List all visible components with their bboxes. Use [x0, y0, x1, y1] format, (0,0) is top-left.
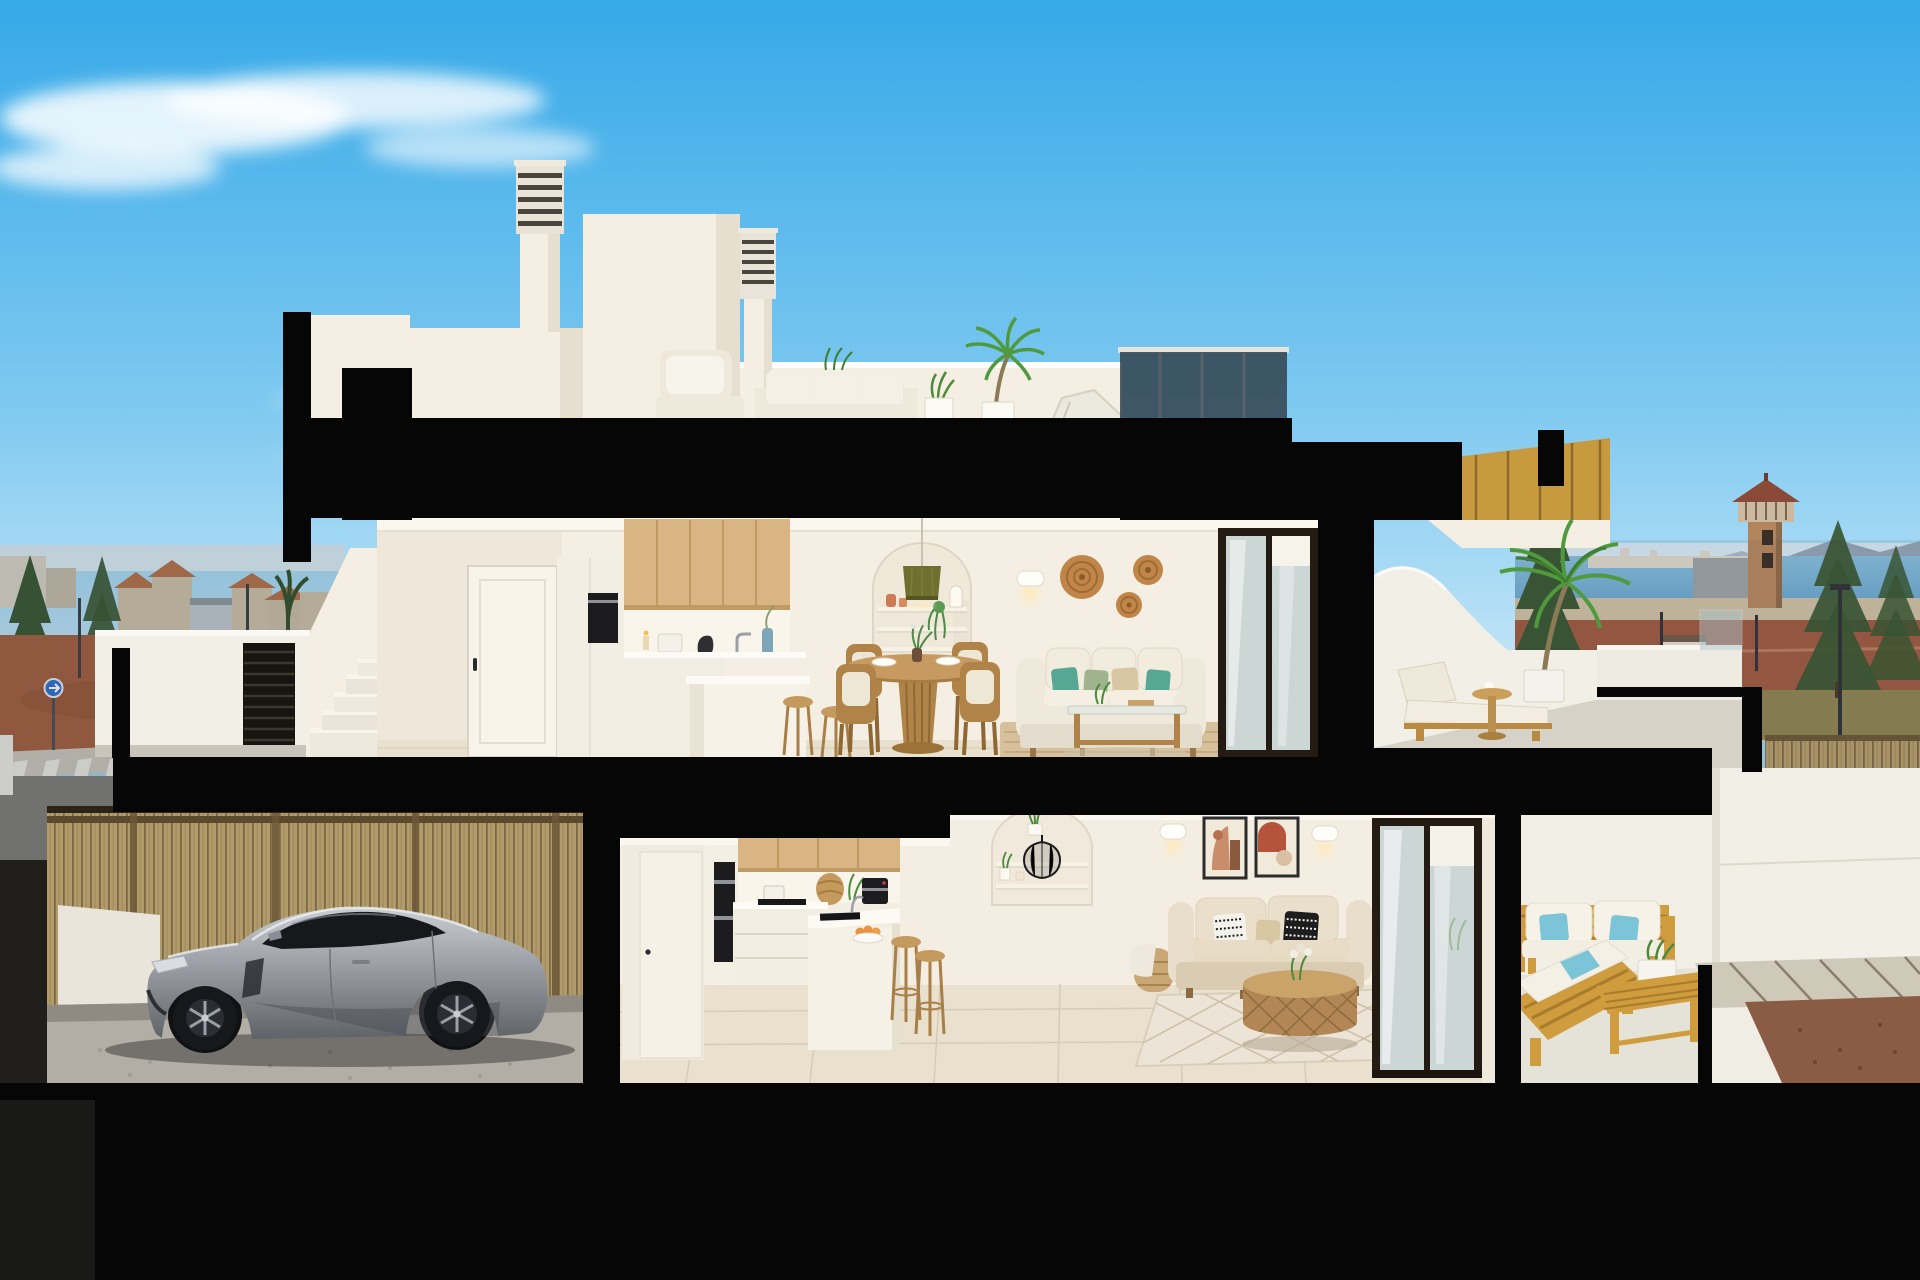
roller-blind [1272, 536, 1310, 566]
upper-glass-door [1218, 528, 1318, 758]
roof-armchair [656, 350, 744, 427]
lower-glass-door [1372, 818, 1482, 1078]
cut-divider-lower [1495, 812, 1521, 1085]
upper-door [468, 566, 557, 757]
cut-terrace-strip [1597, 687, 1742, 697]
hob-pot [764, 886, 784, 900]
cutaway-render [0, 0, 1920, 1280]
cut-divider-garage [583, 757, 620, 1085]
peninsula [808, 928, 900, 1050]
rear-wheel [424, 981, 490, 1047]
island-top [686, 676, 810, 684]
counter-basket [816, 873, 844, 905]
sink [820, 912, 860, 920]
cut-lower-column [1698, 965, 1712, 1085]
lower-door [640, 852, 702, 1058]
framed-art [1204, 818, 1246, 878]
front-wheel [173, 986, 237, 1050]
upper-floor [377, 497, 1318, 762]
mini-arch-decor [950, 586, 962, 607]
cut-left-column [283, 312, 311, 562]
terracotta-vase [899, 598, 907, 607]
roller-blind [1430, 826, 1474, 866]
ground-shadow-left [0, 1100, 95, 1280]
glass-railing [1700, 610, 1742, 650]
chimney-right [738, 228, 778, 392]
candle [643, 636, 649, 650]
cut-parapet-edge [112, 648, 130, 758]
screenshot-root [0, 0, 1920, 1280]
wall-sconce [1312, 826, 1338, 863]
roof-box-left [408, 328, 583, 425]
lower-terrace [1512, 768, 1920, 1085]
chimney-left [514, 160, 566, 332]
door-handle [352, 960, 370, 964]
double-oven [714, 862, 735, 962]
wall-sconce [1016, 571, 1044, 610]
tray [1128, 700, 1154, 706]
cut-glass-notch [1538, 430, 1564, 486]
cut-terrace-column [1742, 687, 1762, 772]
door-handle [473, 658, 477, 671]
upper-oak-cabinets [624, 519, 790, 608]
cut-roof-slab-right [1120, 442, 1462, 520]
cut-divider-upper [1318, 515, 1374, 762]
draped-blanket [1130, 944, 1156, 977]
blue-vase [762, 628, 773, 656]
niche-pot [1016, 872, 1024, 880]
cooking-pot [658, 634, 682, 652]
lower-floor [620, 800, 1495, 1083]
blue-pillow [1539, 913, 1569, 943]
cut-base-slab [0, 1083, 1920, 1280]
garage [47, 806, 583, 1085]
palm-pot [1524, 670, 1564, 702]
kitchen-island [690, 684, 806, 757]
wall-sconce [1160, 824, 1186, 861]
plate [872, 658, 896, 666]
plate [936, 657, 960, 665]
induction-hob [758, 899, 806, 905]
niche-pot [1000, 868, 1010, 880]
terracotta-vase [886, 594, 896, 607]
right-garden-wall [1712, 768, 1920, 968]
framed-art [1256, 818, 1298, 876]
